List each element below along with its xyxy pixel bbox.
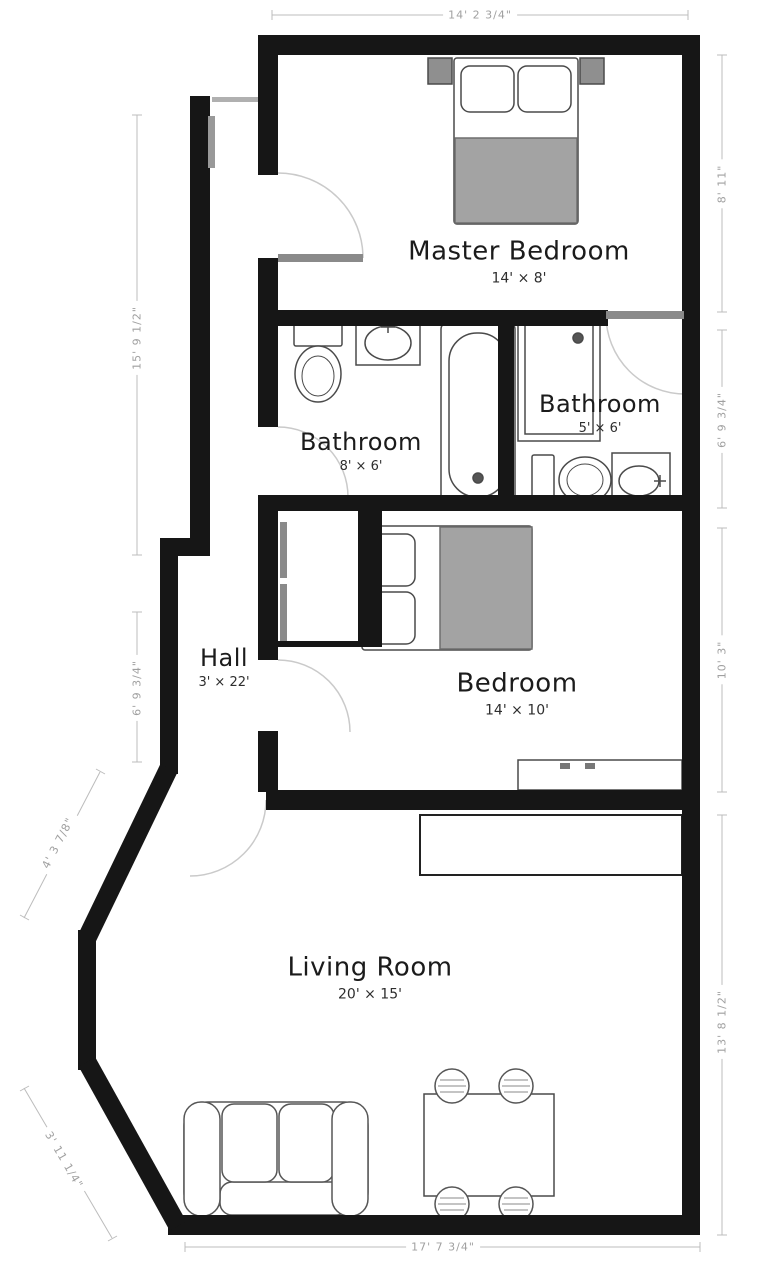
wall-closet-bottom <box>278 641 382 647</box>
wall-bath-divider <box>498 310 514 511</box>
wall-bath-band-bottom <box>258 495 700 511</box>
counter <box>420 815 682 875</box>
wall-bottom <box>168 1215 700 1235</box>
wall-master-left-upper <box>258 35 278 175</box>
blanket <box>455 138 577 223</box>
dresser-handle-icon <box>585 763 595 769</box>
room-label-bedroom: Bedroom 14' × 10' <box>456 670 577 719</box>
wall-master-left-lower <box>258 258 278 314</box>
wall-diagonal-upper <box>87 768 169 938</box>
room-size: 14' × 8' <box>408 270 630 286</box>
dining-table <box>424 1094 554 1196</box>
drain-icon <box>473 473 483 483</box>
sofa-cushion <box>222 1104 277 1182</box>
sofa-cushion <box>279 1104 334 1182</box>
dim-label-right-living: 13' 8 1/2" <box>715 985 730 1059</box>
room-name: Bathroom <box>539 391 661 419</box>
wall-hall-left-lower <box>160 538 178 774</box>
dim-label-right-bath: 6' 9 3/4" <box>715 387 730 453</box>
room-label-bathroom-2: Bathroom 5' × 6' <box>539 391 661 437</box>
dresser-handle-icon <box>560 763 570 769</box>
closet-door <box>280 522 287 578</box>
sink-basin-icon <box>619 466 659 496</box>
room-size: 20' × 15' <box>287 986 452 1002</box>
window-hall-top <box>212 97 258 102</box>
toilet-bowl-icon <box>567 464 603 496</box>
room-label-bathroom-1: Bathroom 8' × 6' <box>300 429 422 475</box>
room-name: Master Bedroom <box>408 238 630 268</box>
wall-bedroom-bottom <box>266 790 700 810</box>
door-leaf-master-bedroom <box>278 254 363 262</box>
wall-hall-left-upper <box>190 96 210 546</box>
door-leaf-bathroom-2 <box>606 311 684 319</box>
room-name: Bedroom <box>456 670 577 700</box>
wall-bath-band-top <box>278 310 608 326</box>
floor-plan: Master Bedroom 14' × 8' Bathroom 8' × 6'… <box>0 0 768 1263</box>
wall-hall-right-lower <box>258 731 278 792</box>
toilet-bowl-icon <box>302 356 334 396</box>
window-hall-left <box>208 116 215 168</box>
room-size: 14' × 10' <box>456 702 577 718</box>
door-arc-bathroom-2 <box>606 315 685 394</box>
wall-closet <box>358 511 382 647</box>
dim-label-left-lower: 6' 9 3/4" <box>130 655 145 721</box>
dim-label-top: 14' 2 3/4" <box>443 8 517 23</box>
dim-label-bottom: 17' 7 3/4" <box>406 1240 480 1255</box>
door-arc-bedroom <box>278 660 350 732</box>
room-size: 8' × 6' <box>300 460 422 475</box>
pillow-icon <box>518 66 571 112</box>
shower-head-icon <box>573 333 583 343</box>
pillow-icon <box>461 66 514 112</box>
closet-door <box>280 584 287 641</box>
door-arc-master-bedroom <box>278 173 363 258</box>
wall-bathroom1-left <box>258 310 278 427</box>
dim-label-right-master: 8' 11" <box>715 160 730 209</box>
room-name: Bathroom <box>300 429 422 457</box>
room-label-hall: Hall 3' × 22' <box>198 645 249 691</box>
sofa-back <box>220 1182 348 1215</box>
door-arc-living-room <box>190 800 266 876</box>
sofa-arm <box>184 1102 220 1216</box>
sofa-arm <box>332 1102 368 1216</box>
floor-plan-drawing <box>0 0 768 1263</box>
dim-label-left-upper: 15' 9 1/2" <box>130 301 145 375</box>
wall-right <box>682 35 700 1235</box>
wall-top <box>258 35 700 55</box>
room-size: 5' × 6' <box>539 422 661 437</box>
wall-diagonal-lower <box>87 1062 178 1226</box>
room-label-living-room: Living Room 20' × 15' <box>287 954 452 1003</box>
dim-label-right-bedroom: 10' 3" <box>715 636 730 685</box>
nightstand-right <box>580 58 604 84</box>
room-size: 3' × 22' <box>198 676 249 691</box>
wall-bay-left <box>78 930 96 1070</box>
blanket <box>440 527 532 649</box>
room-name: Hall <box>198 645 249 673</box>
wall-hall-right-upper <box>258 511 278 660</box>
dresser <box>518 760 682 790</box>
room-name: Living Room <box>287 954 452 984</box>
room-label-master-bedroom: Master Bedroom 14' × 8' <box>408 238 630 287</box>
sofa <box>184 1102 368 1216</box>
nightstand-left <box>428 58 452 84</box>
